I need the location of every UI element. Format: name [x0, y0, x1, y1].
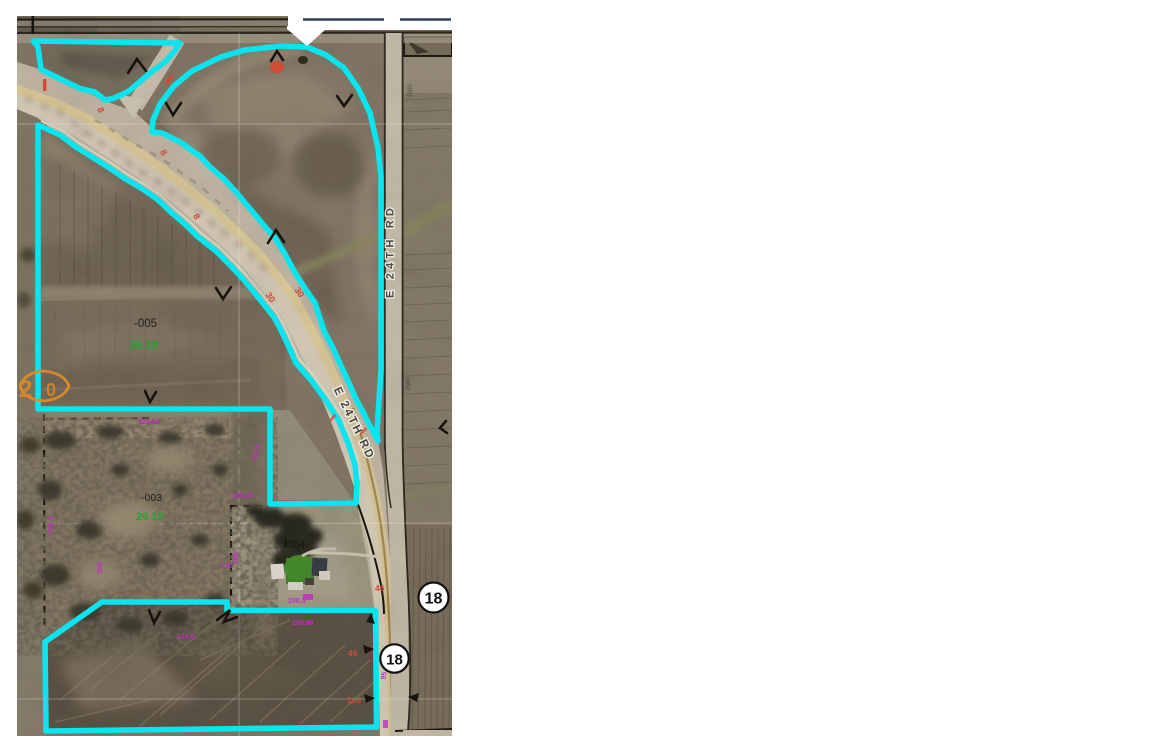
svg-text:-005: -005	[134, 318, 157, 330]
svg-text:208.5: 208.5	[288, 598, 306, 605]
svg-text:250.08: 250.08	[292, 620, 314, 627]
svg-text:95: 95	[380, 671, 388, 680]
svg-text:004: 004	[287, 539, 305, 551]
svg-text:150.00: 150.00	[232, 493, 254, 500]
svg-text:0: 0	[46, 380, 56, 400]
svg-text:168: 168	[347, 695, 361, 705]
svg-text:2060: 2060	[406, 377, 412, 391]
svg-text:164.9: 164.9	[177, 634, 195, 641]
svg-text:46: 46	[375, 583, 385, 593]
svg-text:36.19: 36.19	[129, 340, 158, 352]
svg-text:165: 165	[233, 552, 240, 564]
svg-text:208: 208	[97, 562, 104, 574]
svg-text:2500: 2500	[408, 84, 414, 98]
svg-text:331.3: 331.3	[48, 516, 55, 534]
svg-text:E 24TH RD: E 24TH RD	[385, 204, 397, 298]
svg-text:26.18: 26.18	[136, 511, 164, 523]
svg-text:2: 2	[19, 376, 32, 403]
svg-text:-003: -003	[141, 492, 162, 504]
svg-text:120: 120	[221, 563, 233, 570]
svg-text:18: 18	[425, 591, 443, 608]
svg-text:329.02: 329.02	[138, 419, 160, 426]
svg-text:18: 18	[386, 652, 403, 669]
svg-text:46: 46	[348, 648, 358, 658]
